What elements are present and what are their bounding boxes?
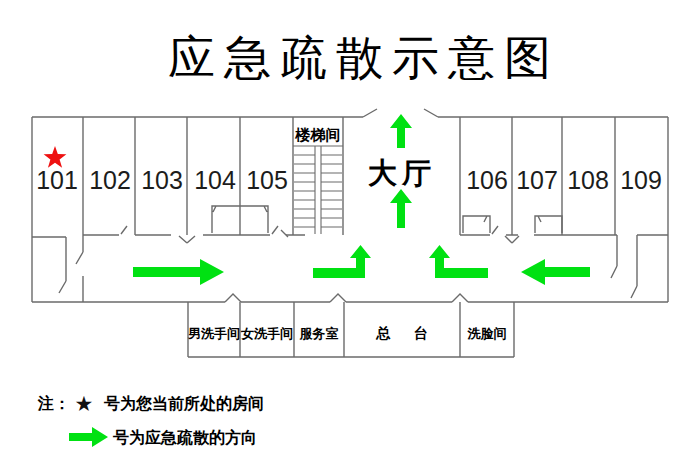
legend: 注： ★ 号为您当前所处的房间 号为应急疏散的方向: [37, 392, 264, 447]
legend-star-icon: ★: [75, 392, 94, 415]
corridor-turn-up-left-arrow-icon: [313, 245, 371, 278]
room-102-label: 102: [89, 166, 131, 194]
entrance-up-arrow-icon: [390, 114, 412, 148]
womens-restroom-label: 女洗手间: [240, 326, 293, 341]
room-103-label: 103: [141, 166, 183, 194]
room-105-label: 105: [246, 166, 288, 194]
fixture-106: [463, 216, 490, 233]
mens-restroom-label: 男洗手间: [187, 326, 240, 341]
room-109-label: 109: [620, 166, 662, 194]
stairwell-label: 楼梯间: [295, 126, 341, 143]
fixture-107: [535, 216, 562, 233]
room-104-label: 104: [194, 166, 236, 194]
corridor-east-arrow-icon: [133, 259, 224, 285]
corridor-turn-up-right-arrow-icon: [429, 245, 488, 278]
room-106-label: 106: [466, 166, 508, 194]
room-108-label: 108: [567, 166, 609, 194]
room-101-label: 101: [36, 166, 78, 194]
front-desk-label: 总 台: [375, 325, 438, 341]
lobby-label: 大厅: [368, 157, 436, 189]
legend-evacuation-text: 号为应急疏散的方向: [112, 428, 257, 446]
staircase: [293, 146, 343, 234]
legend-arrow-icon: [69, 427, 108, 447]
you-are-here-star-icon: [44, 146, 67, 168]
stair-treads: [294, 155, 342, 227]
evacuation-diagram: 应急疏散示意图 101 102 103 104 105 106: [0, 0, 700, 460]
washroom-label: 洗脸间: [467, 326, 507, 341]
service-room-label: 服务室: [299, 326, 339, 341]
page-title: 应急疏散示意图: [168, 32, 560, 84]
corridor-west-arrow-icon: [521, 259, 590, 285]
floor-plan-canvas: 应急疏散示意图 101 102 103 104 105 106: [0, 0, 700, 460]
evacuation-arrows: [133, 114, 590, 285]
legend-note-prefix: 注：: [37, 394, 70, 412]
room-107-label: 107: [516, 166, 558, 194]
wall-lines: [32, 109, 668, 357]
legend-current-room-text: 号为您当前所处的房间: [103, 394, 264, 412]
lobby-up-arrow-icon: [390, 189, 412, 228]
